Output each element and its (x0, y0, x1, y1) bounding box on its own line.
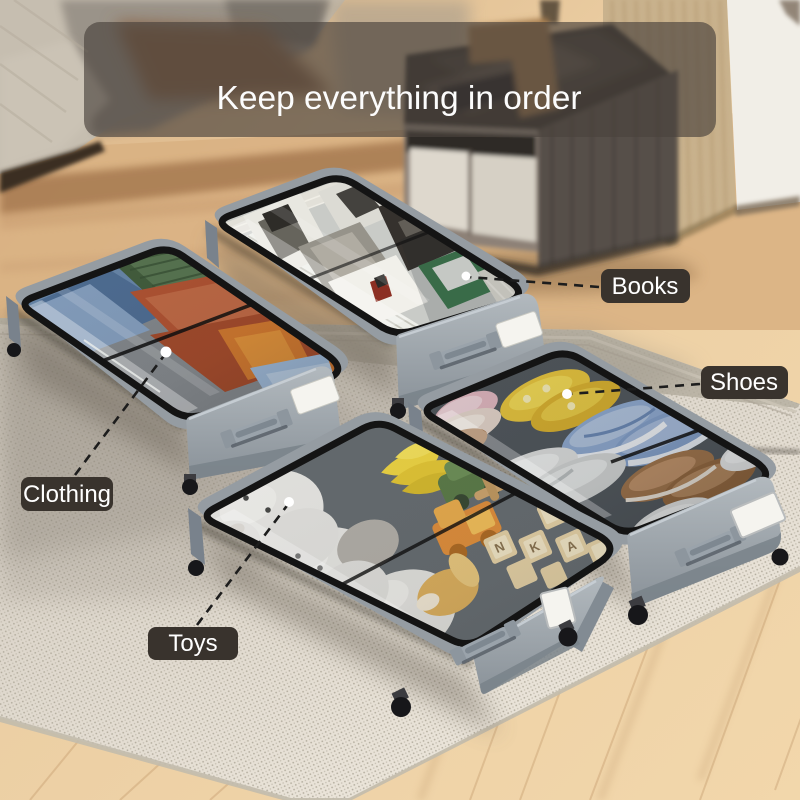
svg-text:Clothing: Clothing (23, 481, 111, 508)
svg-text:Books: Books (612, 273, 679, 300)
svg-text:Keep everything in order: Keep everything in order (217, 80, 582, 117)
svg-text:Toys: Toys (168, 630, 217, 657)
svg-text:Shoes: Shoes (710, 369, 778, 396)
